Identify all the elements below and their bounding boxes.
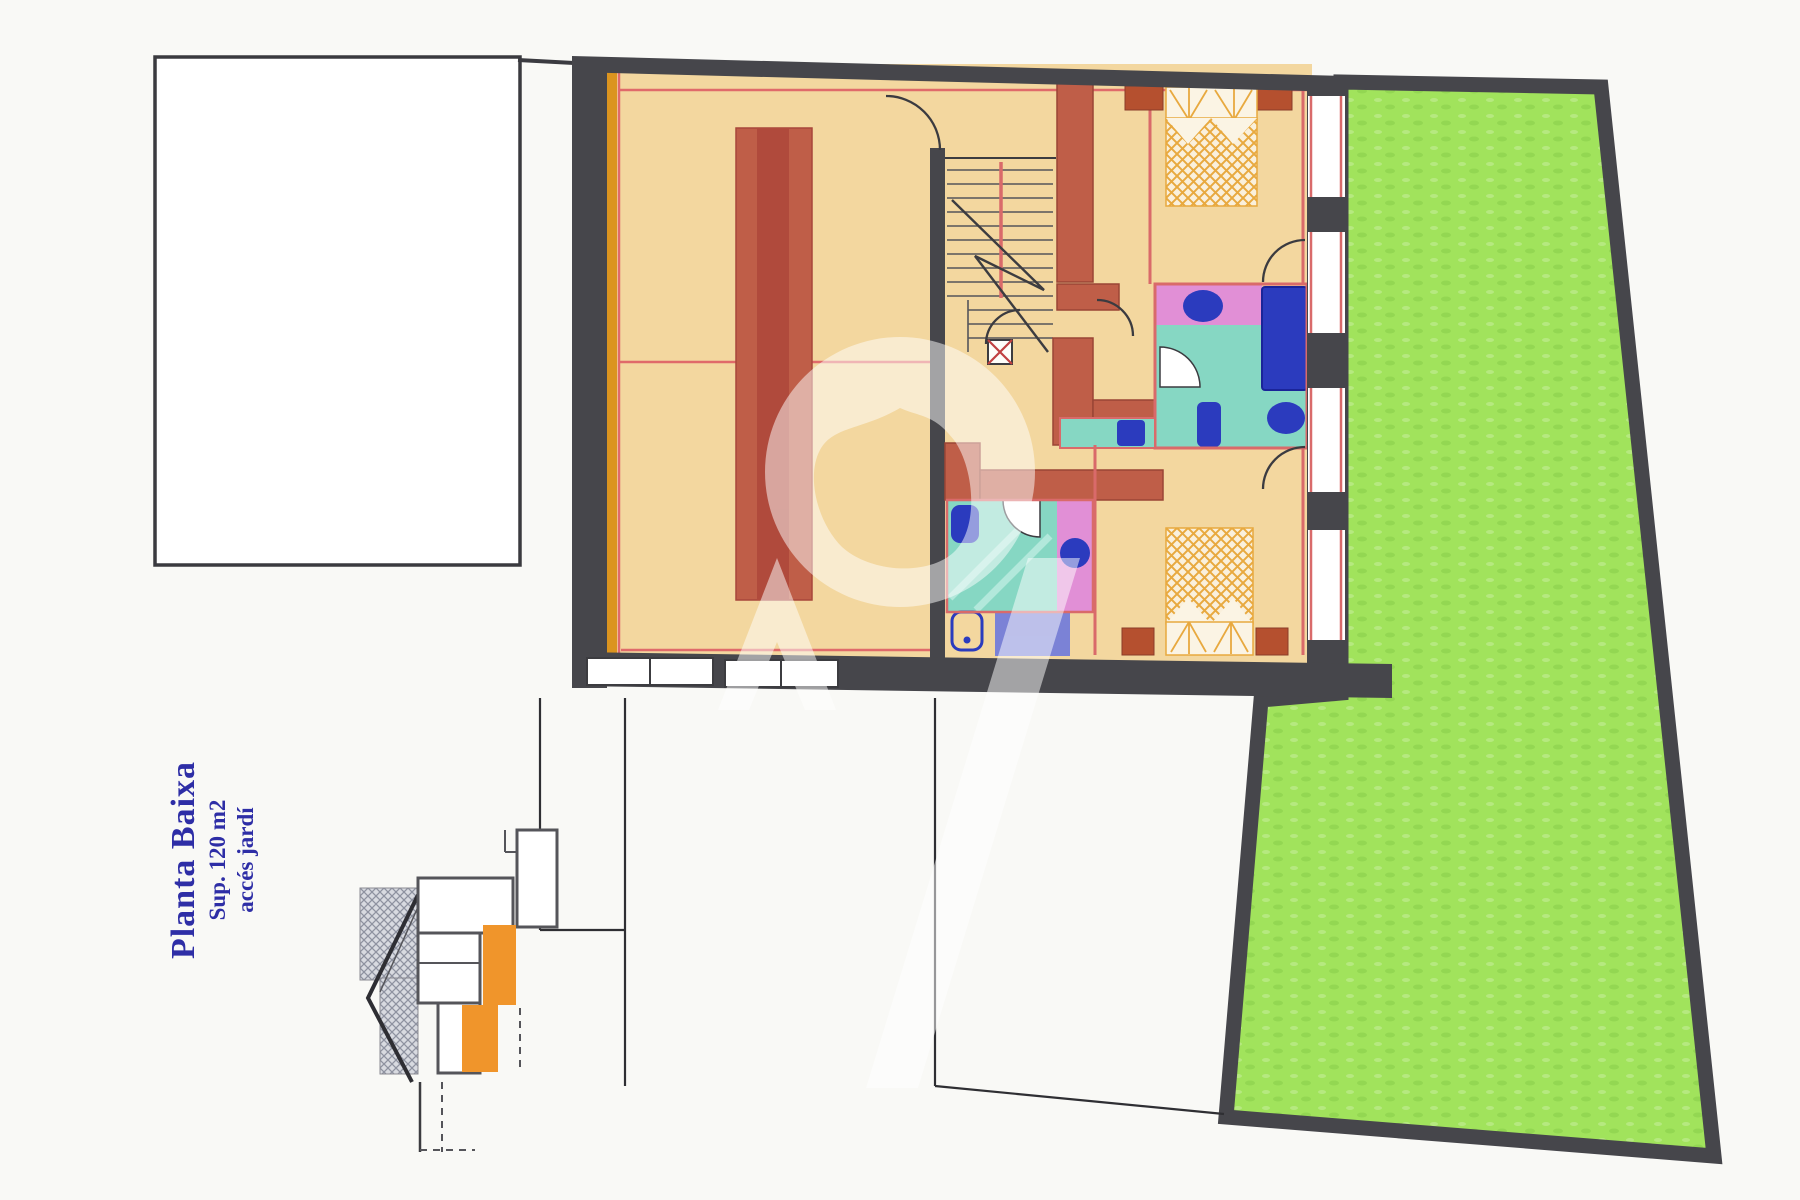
bathroom-main xyxy=(1155,284,1307,448)
plan-label-block: Planta Baixa Sup. 120 m2 accés jardí xyxy=(165,745,321,975)
bed-top xyxy=(1166,87,1257,206)
area-label: Sup. 120 m2 xyxy=(205,745,231,975)
nightstand xyxy=(1125,86,1163,110)
nightstand xyxy=(1256,628,1288,655)
bathtub xyxy=(1262,287,1307,390)
bathroom-strip xyxy=(1060,418,1155,448)
sink xyxy=(1183,290,1223,322)
section-highlight-floor xyxy=(483,925,516,1005)
section-drawing xyxy=(360,830,557,1152)
floor-plan-drawing xyxy=(0,0,1800,1200)
adjacent-plot-outline xyxy=(155,57,574,565)
floor-name-label: Planta Baixa xyxy=(165,745,203,975)
toilet-oval xyxy=(1267,402,1305,434)
shaft-x-box xyxy=(988,340,1012,364)
toilet xyxy=(1197,402,1221,447)
bed-bottom xyxy=(1166,528,1253,655)
floor-plan-scan-page: Planta Baixa Sup. 120 m2 accés jardí xyxy=(0,0,1800,1200)
garden-access-label: accés jardí xyxy=(233,745,259,975)
nightstand xyxy=(1122,628,1154,655)
